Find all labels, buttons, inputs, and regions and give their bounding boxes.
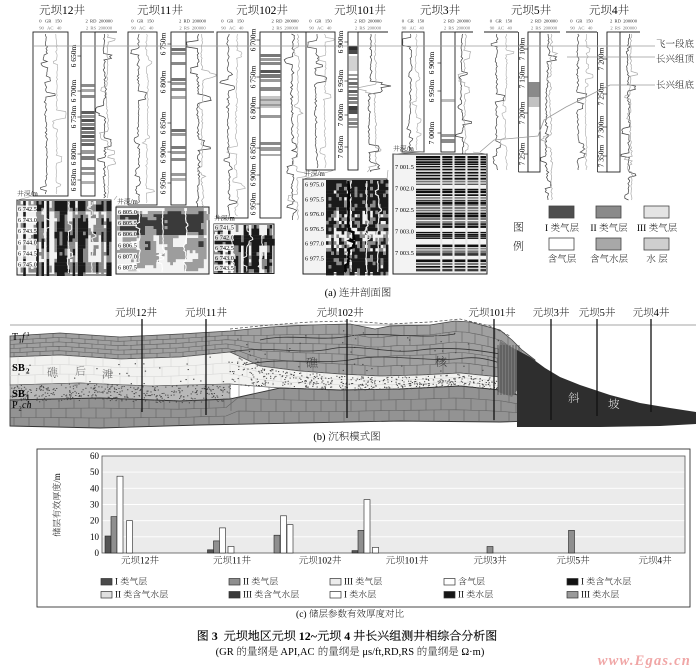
svg-text:6 806.5: 6 806.5 bbox=[118, 242, 137, 249]
svg-text:1: 1 bbox=[27, 331, 30, 338]
svg-text:2 RS 200000: 2 RS 200000 bbox=[444, 26, 471, 31]
svg-text:6 745.0: 6 745.0 bbox=[18, 262, 37, 269]
svg-text:ch: ch bbox=[22, 400, 31, 411]
svg-text:90 AC 40: 90 AC 40 bbox=[570, 26, 593, 31]
svg-text:3: 3 bbox=[554, 308, 559, 319]
svg-text:(b): (b) bbox=[313, 432, 328, 443]
svg-text:II: II bbox=[590, 224, 599, 234]
svg-text:11: 11 bbox=[232, 557, 241, 567]
svg-text:2 RS 200000: 2 RS 200000 bbox=[531, 26, 558, 31]
svg-text:I: I bbox=[581, 577, 586, 587]
svg-text:II: II bbox=[458, 590, 466, 600]
svg-text:6 976.0: 6 976.0 bbox=[305, 211, 324, 218]
svg-text:30: 30 bbox=[90, 499, 100, 509]
svg-text:III: III bbox=[637, 224, 649, 234]
svg-text:6 800m: 6 800m bbox=[249, 96, 258, 119]
svg-text:6 742.0: 6 742.0 bbox=[215, 235, 234, 242]
svg-text:6 850m: 6 850m bbox=[249, 136, 258, 159]
svg-text:6 805.5: 6 805.5 bbox=[118, 220, 137, 227]
svg-text:4: 4 bbox=[657, 557, 662, 567]
svg-text:6 741.5: 6 741.5 bbox=[215, 225, 234, 232]
svg-text:4: 4 bbox=[654, 308, 660, 319]
svg-text:7 002.0: 7 002.0 bbox=[395, 186, 414, 193]
svg-text:2 RD 200000: 2 RD 200000 bbox=[610, 19, 638, 24]
svg-text:12: 12 bbox=[62, 5, 74, 17]
svg-text:μs/ft,RD,RS: μs/ft,RD,RS bbox=[360, 647, 417, 658]
svg-text:102: 102 bbox=[318, 557, 333, 567]
svg-text:7 002.5: 7 002.5 bbox=[395, 207, 414, 214]
svg-text:90 AC 40: 90 AC 40 bbox=[39, 26, 62, 31]
svg-text:P: P bbox=[12, 400, 18, 411]
svg-text:102: 102 bbox=[337, 308, 353, 319]
svg-text:90 AC 40: 90 AC 40 bbox=[402, 26, 425, 31]
svg-text:/m: /m bbox=[31, 191, 39, 198]
svg-text:6 743.5: 6 743.5 bbox=[215, 265, 234, 272]
svg-text:7 001.5: 7 001.5 bbox=[395, 164, 414, 171]
svg-text:7 000m: 7 000m bbox=[336, 103, 345, 126]
svg-text:60: 60 bbox=[90, 451, 100, 461]
svg-text:6 950m: 6 950m bbox=[249, 192, 258, 215]
svg-text:7 050m: 7 050m bbox=[336, 135, 345, 158]
svg-text:2 RS 200000: 2 RS 200000 bbox=[610, 26, 637, 31]
svg-text:7 000m: 7 000m bbox=[427, 121, 436, 144]
svg-text:12: 12 bbox=[140, 557, 150, 567]
svg-text:2 RS 200000: 2 RS 200000 bbox=[355, 26, 382, 31]
svg-text:0 GR 150: 0 GR 150 bbox=[39, 19, 62, 24]
svg-text:6 900m: 6 900m bbox=[159, 140, 168, 163]
svg-text:0 GR 150: 0 GR 150 bbox=[309, 19, 332, 24]
svg-text:102: 102 bbox=[259, 5, 277, 17]
svg-text:0 GR 150: 0 GR 150 bbox=[570, 19, 593, 24]
svg-text:6 800m: 6 800m bbox=[159, 70, 168, 93]
svg-text:40: 40 bbox=[90, 483, 100, 493]
svg-text:10: 10 bbox=[90, 532, 100, 542]
svg-text:6 950m: 6 950m bbox=[427, 79, 436, 102]
svg-text:6 807.5: 6 807.5 bbox=[118, 265, 137, 272]
svg-text:101: 101 bbox=[405, 557, 420, 567]
svg-text:90 AC 40: 90 AC 40 bbox=[490, 26, 513, 31]
svg-text:6 977.0: 6 977.0 bbox=[305, 241, 324, 248]
svg-text:6 742.5: 6 742.5 bbox=[215, 245, 234, 252]
svg-text:4: 4 bbox=[612, 5, 618, 17]
svg-text:6 850m: 6 850m bbox=[159, 111, 168, 134]
svg-text:12: 12 bbox=[136, 308, 147, 319]
svg-text:11: 11 bbox=[160, 5, 171, 17]
svg-text:6 744.5: 6 744.5 bbox=[18, 250, 37, 257]
svg-text:5: 5 bbox=[534, 5, 540, 17]
svg-text:Ω·m): Ω·m) bbox=[459, 647, 485, 658]
svg-text:2 RD 200000: 2 RD 200000 bbox=[179, 19, 207, 24]
svg-text:(a): (a) bbox=[325, 288, 339, 299]
svg-text:11: 11 bbox=[206, 308, 216, 319]
svg-text:I: I bbox=[344, 590, 349, 600]
svg-text:2 RD 200000: 2 RD 200000 bbox=[443, 19, 471, 24]
svg-text:2 RD 200000: 2 RD 200000 bbox=[354, 19, 382, 24]
svg-text:0 GR 150: 0 GR 150 bbox=[221, 19, 244, 24]
svg-text:2 RS 200000: 2 RS 200000 bbox=[86, 26, 113, 31]
svg-text:6 900m: 6 900m bbox=[249, 163, 258, 186]
svg-text:T: T bbox=[12, 332, 18, 343]
svg-text:5: 5 bbox=[600, 308, 605, 319]
svg-text:3: 3 bbox=[209, 629, 224, 643]
svg-text:6 743.0: 6 743.0 bbox=[18, 217, 37, 224]
svg-text:2 RD 200000: 2 RD 200000 bbox=[530, 19, 558, 24]
svg-text:6 976.5: 6 976.5 bbox=[305, 226, 324, 233]
svg-text:6 700m: 6 700m bbox=[249, 28, 258, 51]
svg-text:6 950m: 6 950m bbox=[159, 171, 168, 194]
svg-text:I: I bbox=[115, 577, 120, 587]
svg-text:4: 4 bbox=[341, 629, 353, 643]
svg-text:7 003.5: 7 003.5 bbox=[395, 250, 414, 257]
svg-text:II: II bbox=[243, 577, 251, 587]
svg-text:6 975.0: 6 975.0 bbox=[305, 182, 324, 189]
svg-text:III: III bbox=[243, 590, 254, 600]
svg-text:0 GR 150: 0 GR 150 bbox=[490, 19, 513, 24]
svg-text:90 AC 40: 90 AC 40 bbox=[309, 26, 332, 31]
svg-text:3: 3 bbox=[443, 5, 449, 17]
svg-text:I: I bbox=[545, 224, 551, 234]
svg-text:0: 0 bbox=[95, 548, 100, 558]
svg-text:6 743.5: 6 743.5 bbox=[18, 228, 37, 235]
svg-text:6 742.5: 6 742.5 bbox=[18, 206, 37, 213]
svg-text:6 750m: 6 750m bbox=[249, 65, 258, 88]
svg-text:/m: /m bbox=[228, 216, 236, 223]
svg-text:50: 50 bbox=[90, 467, 100, 477]
svg-text:101: 101 bbox=[489, 308, 505, 319]
svg-text:6 805.0: 6 805.0 bbox=[118, 209, 137, 216]
svg-text:www.Egas.cn: www.Egas.cn bbox=[598, 653, 691, 669]
svg-text:6 800m: 6 800m bbox=[69, 142, 78, 165]
svg-text:2 RS 200000: 2 RS 200000 bbox=[179, 26, 206, 31]
svg-text:7 003.0: 7 003.0 bbox=[395, 229, 414, 236]
svg-text:6 850m: 6 850m bbox=[69, 168, 78, 191]
svg-text:3: 3 bbox=[492, 557, 497, 567]
svg-text:/m: /m bbox=[52, 473, 62, 483]
svg-text:(c): (c) bbox=[296, 609, 309, 620]
svg-text:6 977.5: 6 977.5 bbox=[305, 256, 324, 263]
svg-text:(GR: (GR bbox=[216, 647, 237, 658]
svg-text:90 AC 40: 90 AC 40 bbox=[131, 26, 154, 31]
svg-text:6 900m: 6 900m bbox=[336, 30, 345, 53]
svg-text:2: 2 bbox=[26, 368, 30, 376]
svg-text:6 950m: 6 950m bbox=[336, 69, 345, 92]
svg-text:2 RD 200000: 2 RD 200000 bbox=[271, 19, 299, 24]
svg-text:0 GR 150: 0 GR 150 bbox=[402, 19, 425, 24]
svg-text:2 RS 200000: 2 RS 200000 bbox=[272, 26, 299, 31]
svg-text:6 744.0: 6 744.0 bbox=[18, 239, 37, 246]
svg-text:API,AC: API,AC bbox=[278, 647, 317, 658]
svg-text:SB: SB bbox=[12, 363, 25, 374]
svg-text:12~: 12~ bbox=[296, 629, 318, 643]
svg-text:6 750m: 6 750m bbox=[69, 105, 78, 128]
svg-text:5: 5 bbox=[575, 557, 580, 567]
svg-text:90 AC 40: 90 AC 40 bbox=[221, 26, 244, 31]
svg-text:2 RD 200000: 2 RD 200000 bbox=[85, 19, 113, 24]
svg-text:SB: SB bbox=[12, 389, 25, 400]
svg-text:6 700m: 6 700m bbox=[69, 79, 78, 102]
svg-text:/m: /m bbox=[407, 146, 415, 153]
svg-text:20: 20 bbox=[90, 516, 100, 526]
svg-text:II: II bbox=[115, 590, 123, 600]
svg-text:III: III bbox=[344, 577, 355, 587]
svg-text:6 750m: 6 750m bbox=[159, 32, 168, 55]
svg-text:III: III bbox=[581, 590, 592, 600]
svg-text:/m: /m bbox=[131, 199, 139, 206]
svg-text:6 743.0: 6 743.0 bbox=[215, 255, 234, 262]
svg-text:6 806.0: 6 806.0 bbox=[118, 231, 137, 238]
svg-text:6 807.0: 6 807.0 bbox=[118, 253, 137, 260]
svg-text:101: 101 bbox=[357, 5, 375, 17]
svg-text:6 975.5: 6 975.5 bbox=[305, 196, 324, 203]
svg-text:6 900m: 6 900m bbox=[427, 51, 436, 74]
svg-text:0 GR 150: 0 GR 150 bbox=[131, 19, 154, 24]
svg-text:6 650m: 6 650m bbox=[69, 44, 78, 67]
